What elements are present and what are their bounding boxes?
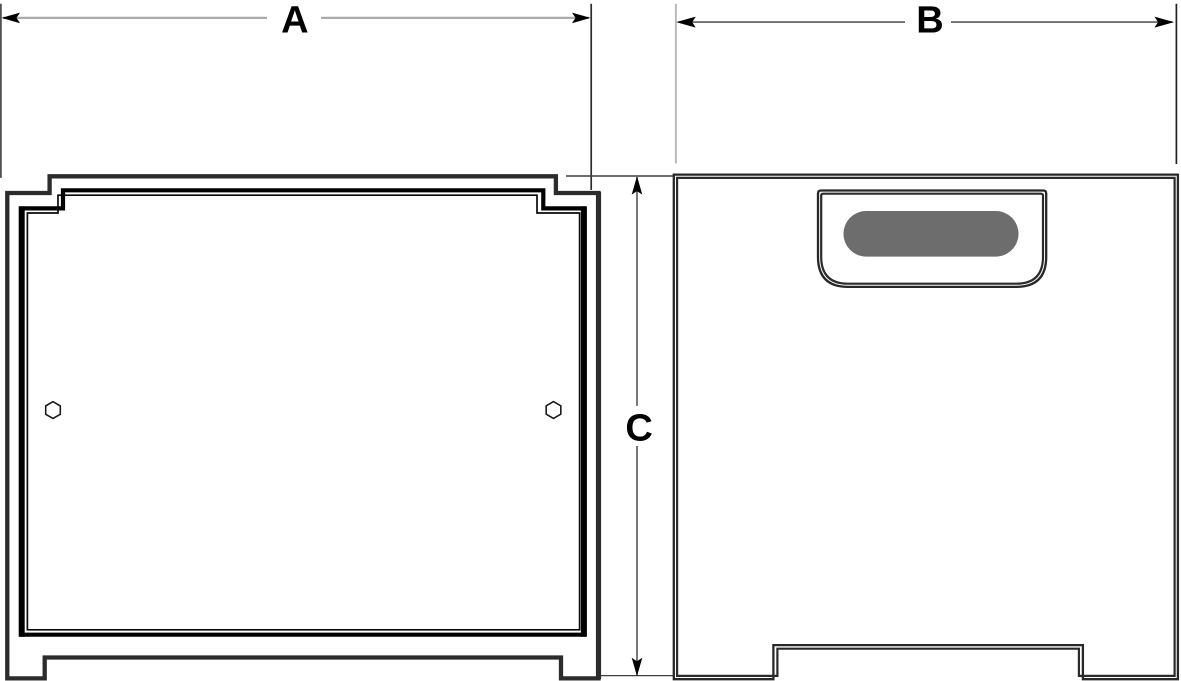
svg-text:B: B <box>916 0 943 42</box>
svg-text:A: A <box>281 0 308 42</box>
svg-text:C: C <box>625 408 652 450</box>
